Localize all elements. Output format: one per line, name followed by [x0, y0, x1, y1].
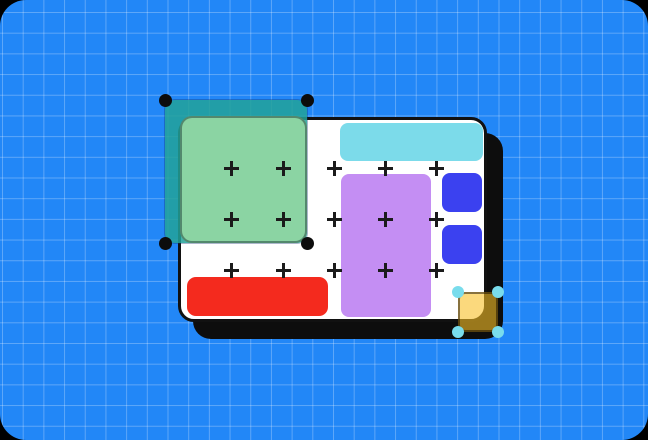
plus-mark — [224, 263, 239, 278]
plus-mark — [327, 161, 342, 176]
plus-mark — [276, 161, 291, 176]
plus-mark — [327, 212, 342, 227]
plus-mark — [429, 212, 444, 227]
blue-square-shape-2[interactable] — [442, 225, 482, 264]
plus-mark — [429, 263, 444, 278]
yellow-square-shape[interactable] — [458, 292, 498, 332]
plus-mark — [224, 161, 239, 176]
cyan-bar-shape[interactable] — [340, 123, 483, 161]
red-bar-shape[interactable] — [187, 277, 328, 316]
selection-handle-bottom-left[interactable] — [159, 237, 172, 250]
plus-mark — [224, 212, 239, 227]
illustration-frame — [0, 0, 648, 440]
plus-mark — [276, 212, 291, 227]
collab-handle-bottom-right[interactable] — [492, 326, 504, 338]
plus-mark — [378, 263, 393, 278]
plus-mark — [429, 161, 444, 176]
collab-handle-bottom-left[interactable] — [452, 326, 464, 338]
design-canvas[interactable] — [0, 0, 648, 440]
purple-rect-shape[interactable] — [341, 174, 431, 317]
blue-square-shape-1[interactable] — [442, 173, 482, 212]
plus-mark — [378, 212, 393, 227]
selection-handle-top-left[interactable] — [159, 94, 172, 107]
plus-mark — [327, 263, 342, 278]
collab-handle-top-left[interactable] — [452, 286, 464, 298]
plus-mark — [276, 263, 291, 278]
plus-mark — [378, 161, 393, 176]
collab-handle-top-right[interactable] — [492, 286, 504, 298]
selection-handle-bottom-right[interactable] — [301, 237, 314, 250]
selection-handle-top-right[interactable] — [301, 94, 314, 107]
